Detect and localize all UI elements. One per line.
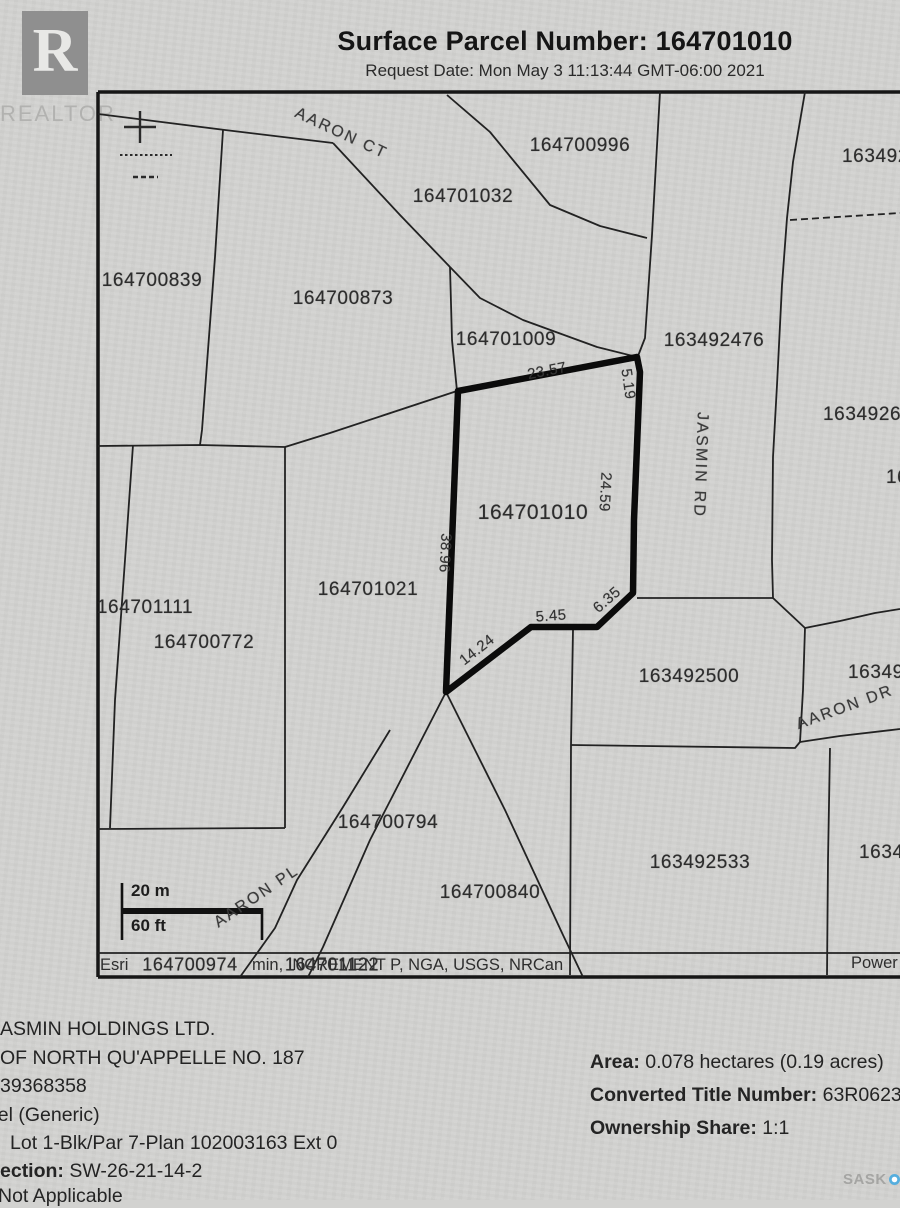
detail-value: 39368358	[0, 1075, 87, 1097]
scale-imperial-label: 60 ft	[131, 916, 166, 936]
map-border	[98, 92, 900, 977]
saskmls-text-left: SASK	[843, 1171, 887, 1188]
parcel-number-label: 164700840	[440, 882, 541, 904]
detail-value: SW-26-21-14-2	[64, 1160, 202, 1182]
detail-line-right: Converted Title Number: 63R06239	[590, 1084, 900, 1107]
detail-line-left: 39368358	[0, 1075, 87, 1098]
parcel-number-label: 164701010	[478, 501, 589, 525]
detail-label: Converted Title Number:	[590, 1084, 817, 1106]
detail-line-left: ection: SW-26-21-14-2	[0, 1160, 202, 1183]
map-attribution-powered: Power	[851, 954, 898, 973]
parcel-number-label: 164700873	[293, 288, 394, 310]
saskmls-logo: SASK MLS ®	[843, 1171, 900, 1188]
detail-label: Ownership Share:	[590, 1117, 757, 1139]
map-attribution-esri: Esri	[100, 956, 128, 975]
detail-value: Not Applicable	[0, 1185, 123, 1207]
parcel-number-label: 164701021	[318, 579, 419, 601]
detail-line-left: cel (Generic)	[0, 1104, 100, 1127]
parcel-number-label: 164701009	[456, 329, 557, 351]
scanned-parcel-report: R REALTOR Surface Parcel Number: 1647010…	[0, 0, 900, 1200]
detail-value: ASMIN HOLDINGS LTD.	[0, 1018, 215, 1040]
detail-line-left: OF NORTH QU'APPELLE NO. 187	[0, 1047, 305, 1070]
parcel-number-label: 163492	[842, 146, 900, 168]
parcel-number-label: 1634926	[823, 404, 900, 426]
parcel-number-label: 164701032	[413, 186, 514, 208]
street-name-label: JASMIN RD	[689, 412, 711, 519]
detail-line-right: Area: 0.078 hectares (0.19 acres)	[590, 1051, 884, 1074]
detail-value: Lot 1-Blk/Par 7-Plan 102003163 Ext 0	[10, 1132, 337, 1154]
parcel-number-label: 163492	[848, 662, 900, 684]
detail-line-left: Not Applicable	[0, 1185, 123, 1208]
detail-label: Area:	[590, 1051, 640, 1073]
parcel-number-label: 163492500	[639, 666, 740, 688]
detail-value: 1:1	[757, 1117, 790, 1139]
parcel-number-label: 164700839	[102, 270, 203, 292]
parcel-boundaries	[98, 92, 900, 977]
detail-value: 63R06239	[817, 1084, 900, 1106]
map-attribution-sources: min, INCREMENT P, NGA, USGS, NRCan	[252, 956, 563, 975]
detail-value: 0.078 hectares (0.19 acres)	[640, 1051, 884, 1073]
parcel-number-label: 164700772	[154, 632, 255, 654]
detail-line-right: Ownership Share: 1:1	[590, 1117, 789, 1140]
parcel-dimension-label: 24.59	[595, 472, 614, 512]
parcel-number-label: 163492476	[664, 330, 765, 352]
parcel-number-label: 164700996	[530, 135, 631, 157]
detail-line-left: Lot 1-Blk/Par 7-Plan 102003163 Ext 0	[10, 1132, 337, 1155]
parcel-dimension-label: 5.45	[535, 606, 567, 625]
saskmls-dot-icon	[889, 1174, 900, 1185]
parcel-number-label: 1634	[859, 842, 900, 864]
parcel-number-label: 164701111	[97, 597, 193, 619]
scale-metric-label: 20 m	[131, 881, 170, 901]
parcel-number-label: 16	[886, 467, 900, 489]
detail-line-left: ASMIN HOLDINGS LTD.	[0, 1018, 215, 1041]
parcel-dimension-label: 38.96	[435, 533, 454, 573]
detail-value: cel (Generic)	[0, 1104, 100, 1126]
detail-value: OF NORTH QU'APPELLE NO. 187	[0, 1047, 305, 1069]
parcel-number-label: 164700974	[142, 955, 238, 976]
parcel-number-label: 164700794	[338, 812, 439, 834]
detail-label: ection:	[0, 1160, 64, 1182]
parcel-number-label: 163492533	[650, 852, 751, 874]
